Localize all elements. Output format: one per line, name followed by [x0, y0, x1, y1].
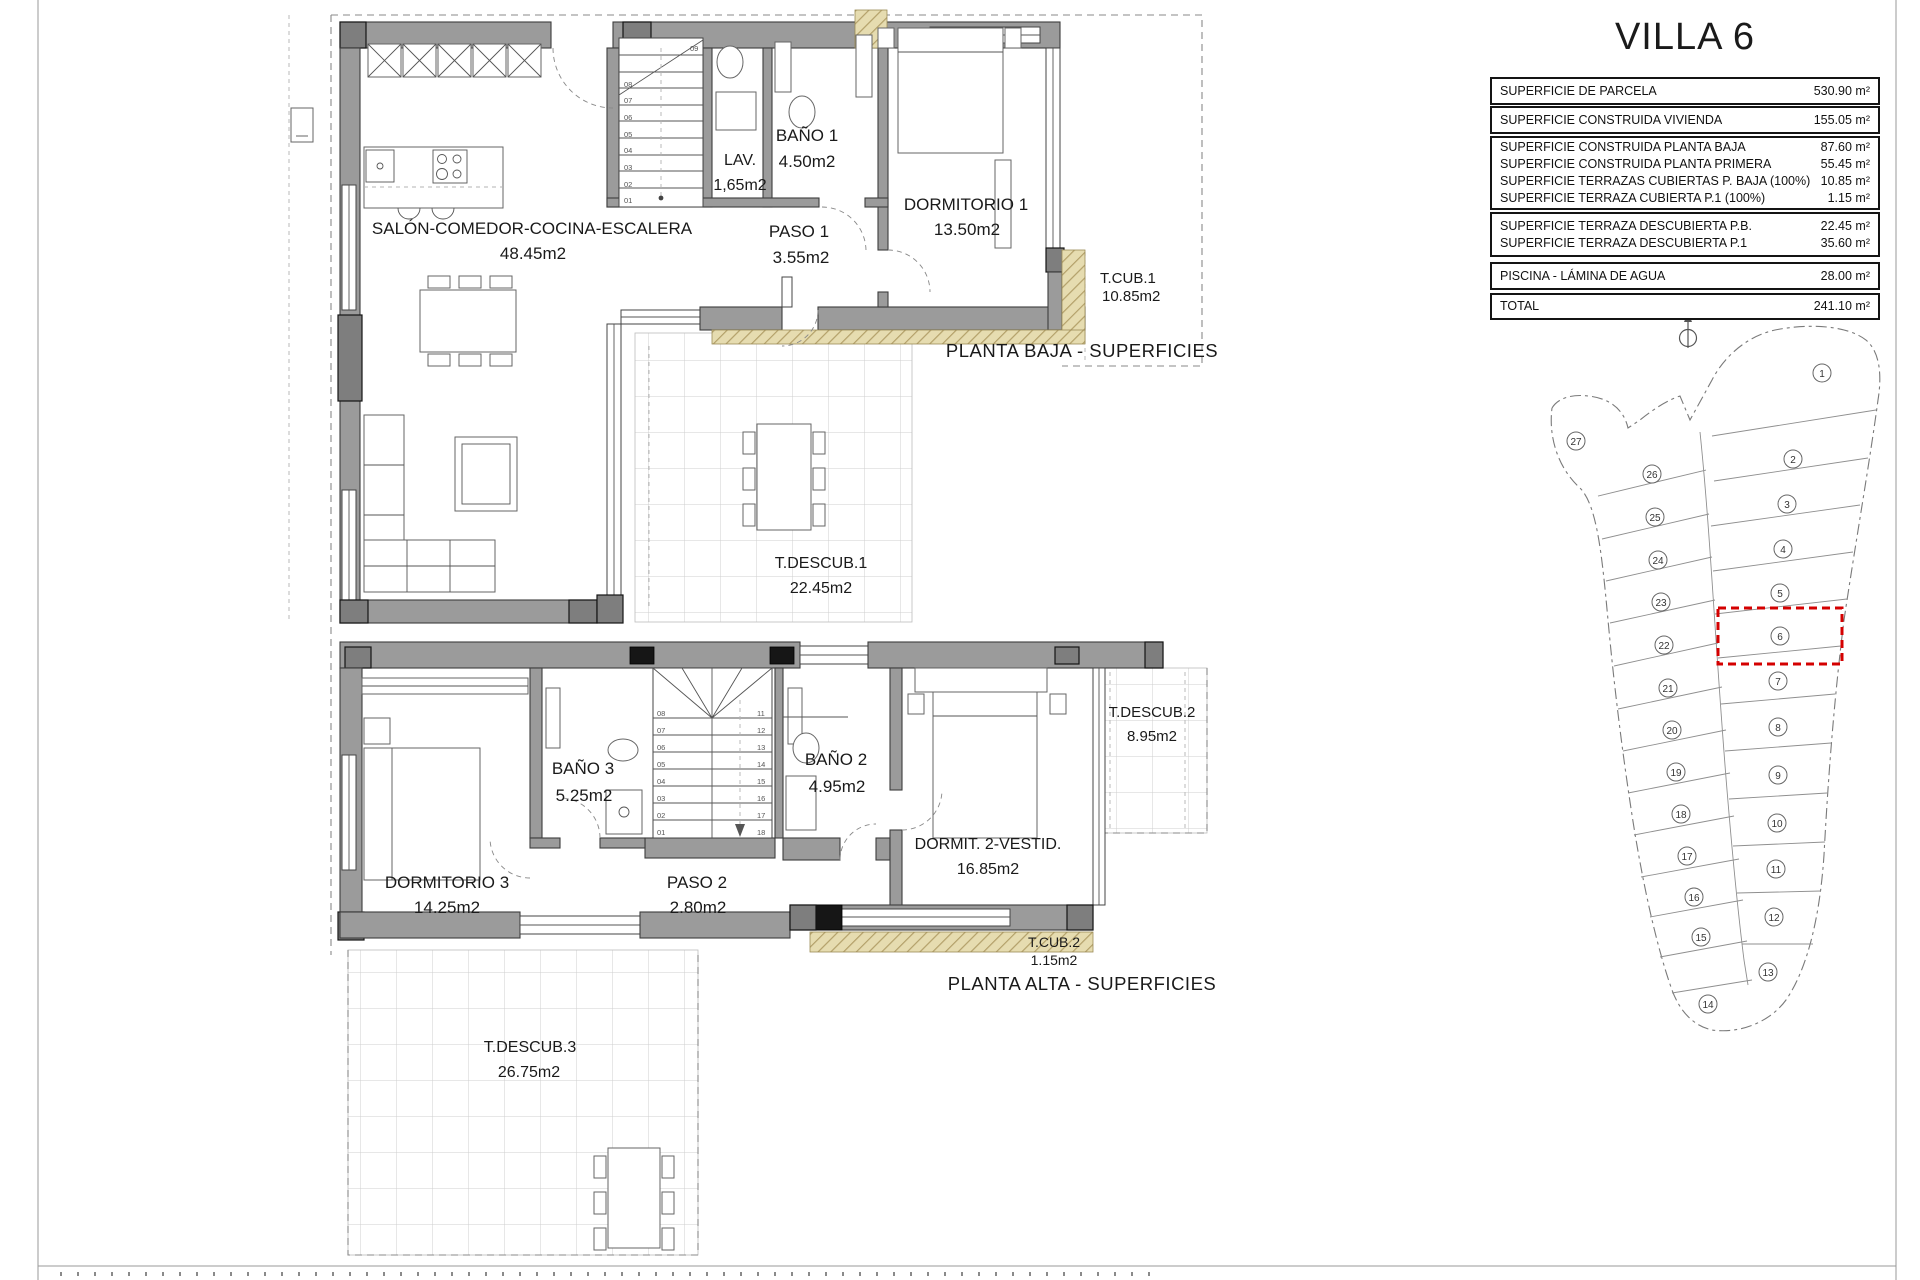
- row-value: 28.00 m²: [1813, 268, 1870, 285]
- table-row: SUPERFICIE TERRAZA DESCUBIERTA P.B. 22.4…: [1500, 218, 1870, 235]
- room-area-bano3: 5.25m2: [556, 786, 613, 805]
- room-label-bano2: BAÑO 2: [805, 750, 867, 769]
- parcel-number: 21: [1662, 684, 1674, 695]
- stair-number: 04: [657, 777, 665, 786]
- washbasin: [716, 92, 756, 130]
- parcel-number: 13: [1762, 968, 1774, 979]
- parcel-number-selected: 6: [1777, 632, 1783, 643]
- parcel-number: 27: [1570, 437, 1582, 448]
- stair-number: 01: [657, 828, 665, 837]
- parcel-number: 3: [1784, 500, 1790, 511]
- terrace-door-leaf: [782, 277, 792, 307]
- stair-number: 15: [757, 777, 765, 786]
- room-area-bano2: 4.95m2: [809, 777, 866, 796]
- surface-table-group-parcela: SUPERFICIE DE PARCELA 530.90 m²: [1490, 77, 1880, 105]
- planta-baja-caption: PLANTA BAJA - SUPERFICIES: [946, 340, 1218, 361]
- parcel-number: 24: [1652, 556, 1664, 567]
- parcel-number: 7: [1775, 677, 1781, 688]
- row-value: 1.15 m²: [1820, 190, 1870, 207]
- table-row: SUPERFICIE CONSTRUIDA VIVIENDA 155.05 m²: [1500, 112, 1870, 129]
- room-area-dormitorio3: 14.25m2: [414, 898, 480, 917]
- parcel-number: 9: [1775, 771, 1781, 782]
- stair-number: 02: [624, 180, 632, 189]
- stair-number: 01: [624, 196, 632, 205]
- coffee-table: [455, 437, 517, 511]
- shower: [775, 42, 791, 92]
- vanity: [856, 35, 872, 97]
- room-label-dormit2: DORMIT. 2-VESTID.: [915, 836, 1062, 853]
- room-label-dormitorio3: DORMITORIO 3: [385, 873, 509, 892]
- room-label-paso2: PASO 2: [667, 873, 727, 892]
- parcel-number: 12: [1768, 913, 1780, 924]
- stair-number: 18: [757, 828, 765, 837]
- row-value: 530.90 m²: [1806, 83, 1870, 100]
- site-plan: 1 2 3 4 5 6 7 8 9 10 11 12 13 14 15 16 1…: [1551, 312, 1880, 1031]
- room-label-tdescub2: T.DESCUB.2: [1109, 704, 1196, 721]
- parcel-number: 14: [1702, 1000, 1714, 1011]
- stair-number: 04: [624, 146, 632, 155]
- parcel-number: 23: [1655, 598, 1667, 609]
- row-value: 35.60 m²: [1813, 235, 1870, 252]
- room-area-tdescub1: 22.45m2: [790, 580, 852, 597]
- surface-table-group-descubierta: SUPERFICIE TERRAZA DESCUBIERTA P.B. 22.4…: [1490, 212, 1880, 257]
- outdoor-table: [608, 1148, 660, 1248]
- stair-number: 06: [624, 113, 632, 122]
- stair-number: 08: [657, 709, 665, 718]
- kitchen-units: [364, 44, 541, 219]
- row-label: SUPERFICIE TERRAZAS CUBIERTAS P. BAJA (1…: [1500, 173, 1810, 190]
- row-label: SUPERFICIE CONSTRUIDA PLANTA BAJA: [1500, 139, 1746, 156]
- room-label-tdescub1: T.DESCUB.1: [775, 555, 868, 572]
- outdoor-table: [757, 424, 811, 530]
- room-area-lav: 1,65m2: [713, 177, 766, 194]
- villa-title: VILLA 6: [1490, 16, 1880, 59]
- stair-number: 08: [624, 80, 632, 89]
- surface-table-group-construida: SUPERFICIE CONSTRUIDA PLANTA BAJA 87.60 …: [1490, 136, 1880, 210]
- row-value: 55.45 m²: [1813, 156, 1870, 173]
- room-area-tcub2: 1.15m2: [1031, 952, 1078, 968]
- kitchen-island: [364, 147, 503, 208]
- room-label-paso1: PASO 1: [769, 222, 829, 241]
- table-row: TOTAL 241.10 m²: [1500, 298, 1870, 315]
- plan-sheet: { "title": "VILLA 6", "surface_table": {…: [0, 0, 1920, 1280]
- parcel-number: 18: [1675, 810, 1687, 821]
- parcel-number: 10: [1771, 819, 1783, 830]
- stair-number: 03: [657, 794, 665, 803]
- parcel-number: 1: [1819, 369, 1825, 380]
- stair-number: 13: [757, 743, 765, 752]
- parcel-number: 19: [1670, 768, 1682, 779]
- parcel-number: 20: [1666, 726, 1678, 737]
- stair-number: 03: [624, 163, 632, 172]
- table-row: PISCINA - LÁMINA DE AGUA 28.00 m²: [1500, 268, 1870, 285]
- row-label: SUPERFICIE DE PARCELA: [1500, 83, 1657, 100]
- room-label-tdescub3: T.DESCUB.3: [484, 1039, 577, 1056]
- stair-number: 02: [657, 811, 665, 820]
- row-value: 241.10 m²: [1806, 298, 1870, 315]
- parcel-number: 26: [1646, 470, 1658, 481]
- row-label: SUPERFICIE TERRAZA DESCUBIERTA P.1: [1500, 235, 1747, 252]
- bed-dormitorio-1: [898, 28, 1003, 153]
- planta-alta-caption: PLANTA ALTA - SUPERFICIES: [948, 973, 1217, 994]
- parcel-number: 15: [1695, 933, 1707, 944]
- parcel-number: 17: [1681, 852, 1693, 863]
- stair-number: 07: [624, 96, 632, 105]
- stair-number: 16: [757, 794, 765, 803]
- row-value: 155.05 m²: [1806, 112, 1870, 129]
- row-label: SUPERFICIE TERRAZA CUBIERTA P.1 (100%): [1500, 190, 1765, 207]
- room-area-tdescub2: 8.95m2: [1127, 728, 1177, 745]
- room-area-paso1: 3.55m2: [773, 248, 830, 267]
- parcel-number: 8: [1775, 723, 1781, 734]
- table-row: SUPERFICIE TERRAZA DESCUBIERTA P.1 35.60…: [1500, 235, 1870, 252]
- staircase-planta-alta: 08 07 06 05 04 03 02 01 11 12 13 14 15 1…: [653, 668, 772, 838]
- row-value: 22.45 m²: [1813, 218, 1870, 235]
- row-label: TOTAL: [1500, 298, 1539, 315]
- utility-box: [291, 108, 313, 142]
- room-area-salon: 48.45m2: [500, 244, 566, 263]
- room-label-salon: SALÓN-COMEDOR-COCINA-ESCALERA: [372, 219, 693, 238]
- room-label-tcub2: T.CUB.2: [1028, 934, 1080, 950]
- room-label-lav: LAV.: [724, 152, 756, 169]
- row-label: SUPERFICIE CONSTRUIDA VIVIENDA: [1500, 112, 1722, 129]
- room-label-tcub1: T.CUB.1: [1100, 270, 1156, 287]
- stair-number: 06: [657, 743, 665, 752]
- row-label: SUPERFICIE TERRAZA DESCUBIERTA P.B.: [1500, 218, 1752, 235]
- stair-number: 11: [757, 709, 765, 718]
- row-value: 87.60 m²: [1813, 139, 1870, 156]
- table-row: SUPERFICIE TERRAZA CUBIERTA P.1 (100%) 1…: [1500, 190, 1870, 207]
- parcel-number: 11: [1771, 865, 1782, 876]
- room-label-bano3: BAÑO 3: [552, 759, 614, 778]
- stair-number: 09: [690, 44, 698, 53]
- room-area-tdescub3: 26.75m2: [498, 1064, 560, 1081]
- stair-number: 12: [757, 726, 765, 735]
- room-area-paso2: 2.80m2: [670, 898, 727, 917]
- room-area-dormitorio1: 13.50m2: [934, 220, 1000, 239]
- headboard: [915, 668, 1047, 692]
- bed-dormitorio-2: [933, 692, 1037, 838]
- bed-dormitorio-3: [364, 748, 480, 880]
- stair-number: 14: [757, 760, 765, 769]
- room-label-dormitorio1: DORMITORIO 1: [904, 195, 1028, 214]
- stair-number: 05: [657, 760, 665, 769]
- parcel-number: 22: [1658, 641, 1670, 652]
- room-area-bano1: 4.50m2: [779, 152, 836, 171]
- parcel-number: 16: [1688, 893, 1700, 904]
- stair-number: 07: [657, 726, 665, 735]
- parcel-number: 4: [1780, 545, 1786, 556]
- row-value: 10.85 m²: [1813, 173, 1870, 190]
- wc: [789, 96, 815, 128]
- row-label: SUPERFICIE CONSTRUIDA PLANTA PRIMERA: [1500, 156, 1771, 173]
- planta-alta-plan: 08 07 06 05 04 03 02 01 11 12 13 14 15 1…: [338, 642, 1216, 1255]
- room-area-tcub1: 10.85m2: [1102, 288, 1160, 305]
- terrace-descub-2: [1103, 668, 1207, 833]
- table-row: SUPERFICIE CONSTRUIDA PLANTA PRIMERA 55.…: [1500, 156, 1870, 173]
- surface-table-group-total: TOTAL 241.10 m²: [1490, 293, 1880, 320]
- development-boundary: [1551, 326, 1880, 1030]
- dining-table: [420, 290, 516, 352]
- table-row: SUPERFICIE CONSTRUIDA PLANTA BAJA 87.60 …: [1500, 139, 1870, 156]
- wc: [717, 46, 743, 78]
- parcel-number: 25: [1649, 513, 1661, 524]
- parcel-number: 5: [1777, 589, 1783, 600]
- parcel-number: 2: [1790, 455, 1796, 466]
- table-row: SUPERFICIE TERRAZAS CUBIERTAS P. BAJA (1…: [1500, 173, 1870, 190]
- staircase-planta-baja: 01 02 03 04 05 06 07 08 09: [619, 38, 703, 207]
- table-row: SUPERFICIE DE PARCELA 530.90 m²: [1500, 83, 1870, 100]
- stair-number: 17: [757, 811, 765, 820]
- room-area-dormit2: 16.85m2: [957, 861, 1019, 878]
- surface-table-group-vivienda: SUPERFICIE CONSTRUIDA VIVIENDA 155.05 m²: [1490, 106, 1880, 134]
- wc: [608, 739, 638, 761]
- row-label: PISCINA - LÁMINA DE AGUA: [1500, 268, 1665, 285]
- room-label-bano1: BAÑO 1: [776, 126, 838, 145]
- stair-number: 05: [624, 130, 632, 139]
- vanity: [546, 688, 560, 748]
- surface-table-group-piscina: PISCINA - LÁMINA DE AGUA 28.00 m²: [1490, 262, 1880, 290]
